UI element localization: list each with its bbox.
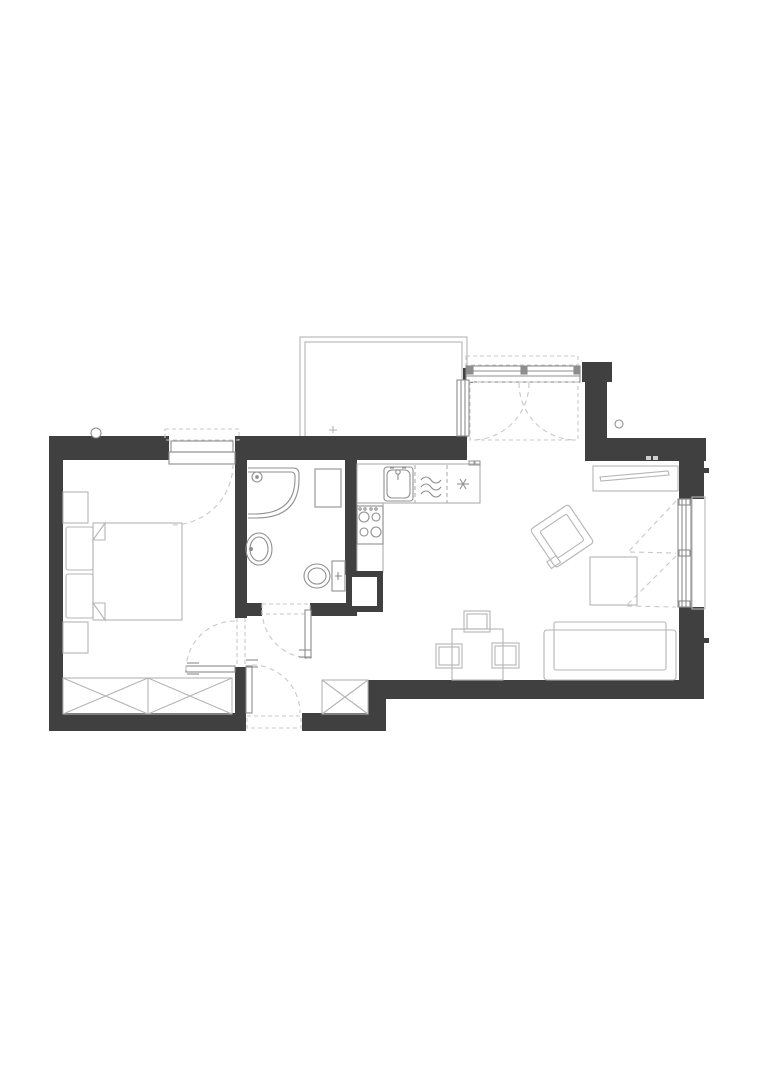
duct-shaft — [346, 571, 383, 612]
background — [0, 0, 777, 1080]
floor-plan — [0, 0, 777, 1080]
downpipe-left — [91, 428, 101, 438]
downpipe-right — [615, 420, 623, 428]
side-window-column — [457, 380, 469, 436]
floor-plan-page — [0, 0, 777, 1080]
